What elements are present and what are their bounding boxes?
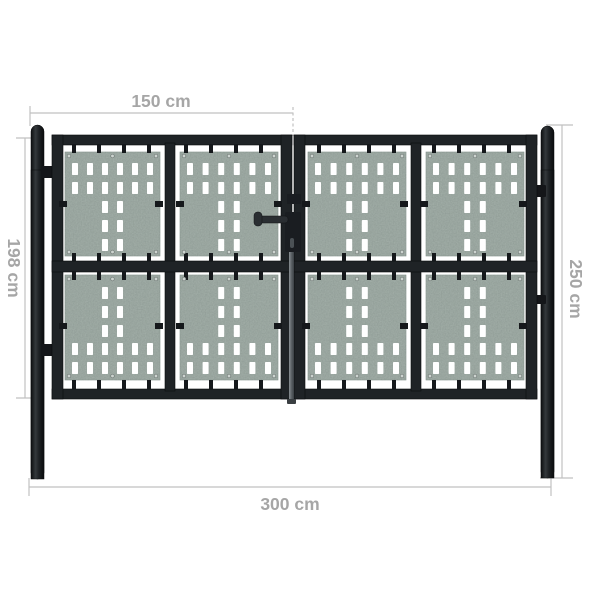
panel-screw [355, 250, 359, 254]
panel-hole [346, 306, 352, 318]
mounting-clip [234, 253, 238, 261]
mounting-clip [72, 253, 76, 261]
panel-hole [249, 362, 255, 374]
panel-screw [428, 374, 432, 378]
mounting-clip [72, 380, 76, 389]
mounting-clip [432, 144, 436, 153]
panel-hole [187, 182, 193, 194]
panel-hole [234, 220, 240, 232]
mounting-clip [72, 271, 76, 280]
panel-screw [227, 250, 231, 254]
mounting-clip [259, 144, 263, 153]
panel-hole [102, 239, 108, 251]
mounting-clip [482, 144, 486, 153]
mounting-clip [420, 201, 428, 207]
panel-hole [187, 163, 193, 175]
panel-hole [495, 182, 501, 194]
mounting-clip [176, 201, 184, 207]
mounting-clip [457, 144, 461, 153]
drop-rod [289, 250, 294, 400]
panel-screw [428, 277, 432, 281]
keyhole-plate [290, 238, 294, 248]
panel-hole [433, 182, 439, 194]
dimension-label-bottom-width: 300 cm [260, 494, 319, 514]
mounting-clip [155, 323, 163, 329]
mounting-clip [392, 144, 396, 153]
mounting-clip [432, 271, 436, 280]
panel-hole [218, 239, 224, 251]
panel-hole [480, 362, 486, 374]
panel-hole [464, 306, 470, 318]
panel-hole [362, 163, 368, 175]
panel-hole [102, 343, 108, 355]
panel-hole [218, 306, 224, 318]
panel-hole [203, 362, 209, 374]
panel-hole [362, 325, 368, 337]
panel-hole [87, 163, 93, 175]
panel-hole [218, 220, 224, 232]
panel-hole [511, 343, 517, 355]
panel-hole [315, 182, 321, 194]
left-leaf-mid-rail [52, 261, 292, 272]
panel-hole [362, 239, 368, 251]
panel-hole [346, 182, 352, 194]
panel-screw [355, 277, 359, 281]
panel-hole [234, 362, 240, 374]
panel-hole [511, 182, 517, 194]
panel-hole [464, 362, 470, 374]
panel-hole [449, 163, 455, 175]
panel-screw [227, 154, 231, 158]
panel-hole [511, 163, 517, 175]
panel-hole [315, 163, 321, 175]
panel-hole [72, 182, 78, 194]
panel-screw [518, 250, 522, 254]
panel-hole [433, 163, 439, 175]
panel-screw [355, 154, 359, 158]
right-leaf-mid-rail [294, 261, 537, 272]
panel-hole [346, 362, 352, 374]
panel-hole [480, 182, 486, 194]
panel-hole [464, 239, 470, 251]
mounting-clip [482, 271, 486, 280]
panel-hole [346, 343, 352, 355]
panel-hole [132, 182, 138, 194]
panel-hole [393, 362, 399, 374]
mounting-clip [97, 144, 101, 153]
panel-screw [310, 154, 314, 158]
mounting-clip [274, 201, 282, 207]
panel-hole [393, 182, 399, 194]
panel-hole [234, 325, 240, 337]
dimension-label-right-height: 250 cm [566, 259, 586, 318]
panel-hole [265, 343, 271, 355]
panel-hole [102, 287, 108, 299]
mounting-clip [72, 144, 76, 153]
panel-hole [203, 163, 209, 175]
panel-hole [346, 201, 352, 213]
panel-hole [449, 362, 455, 374]
panel-bottom-far-left [65, 275, 160, 380]
panel-hole [377, 362, 383, 374]
panel-hole [362, 201, 368, 213]
panel-hole [464, 182, 470, 194]
panel-screw [67, 277, 71, 281]
mounting-clip [432, 380, 436, 389]
mounting-clip [317, 271, 321, 280]
panel-hole [147, 362, 153, 374]
panel-hole [331, 343, 337, 355]
mounting-clip [97, 253, 101, 261]
panel-hole [218, 182, 224, 194]
panel-hole [87, 182, 93, 194]
mounting-clip [400, 323, 408, 329]
mounting-clip [367, 144, 371, 153]
panel-hole [480, 163, 486, 175]
mounting-clip [482, 380, 486, 389]
panel-screw [182, 154, 186, 158]
mounting-clip [209, 271, 213, 280]
panel-hole [102, 163, 108, 175]
panel-hole [249, 163, 255, 175]
panel-screw [473, 250, 477, 254]
panel-hole [249, 343, 255, 355]
panel-bottom-far-right [426, 275, 524, 380]
panel-hole [102, 182, 108, 194]
mounting-clip [234, 271, 238, 280]
panel-screw [428, 154, 432, 158]
mounting-clip [317, 253, 321, 261]
panel-hole [362, 306, 368, 318]
panel-screw [67, 154, 71, 158]
panel-hole [480, 201, 486, 213]
mounting-clip [122, 253, 126, 261]
panel-hole [117, 287, 123, 299]
panel-hole [218, 343, 224, 355]
mounting-clip [367, 380, 371, 389]
panel-screw [182, 374, 186, 378]
panel-hole [117, 362, 123, 374]
mounting-clip [147, 271, 151, 280]
panel-hole [331, 362, 337, 374]
panel-screw [67, 250, 71, 254]
mounting-clip [457, 253, 461, 261]
panel-hole [234, 343, 240, 355]
mounting-clip [209, 253, 213, 261]
mounting-clip [147, 253, 151, 261]
panel-hole [218, 163, 224, 175]
panel-hole [315, 343, 321, 355]
panel-hole [234, 201, 240, 213]
product-image-canvas: 150 cm 198 cm 250 cm 300 cm [0, 0, 600, 600]
panel-hole [249, 182, 255, 194]
dimension-label-top-width: 150 cm [131, 91, 190, 111]
panel-hole [377, 182, 383, 194]
panel-hole [449, 343, 455, 355]
panel-screw [111, 374, 115, 378]
panel-hole [464, 287, 470, 299]
panel-screw [518, 277, 522, 281]
panel-hole [480, 239, 486, 251]
panel-screw [111, 154, 115, 158]
panel-hole [117, 306, 123, 318]
panel-screw [518, 374, 522, 378]
mounting-clip [507, 144, 511, 153]
panel-hole [265, 362, 271, 374]
panel-screw [67, 374, 71, 378]
panel-screw [355, 374, 359, 378]
panel-hole [234, 287, 240, 299]
mounting-clip [342, 271, 346, 280]
mounting-clip [122, 271, 126, 280]
panel-screw [227, 374, 231, 378]
mounting-clip [147, 144, 151, 153]
mounting-clip [392, 271, 396, 280]
panel-top-far-right [426, 152, 524, 256]
handle-end-cap [254, 212, 262, 226]
panel-screw [272, 154, 276, 158]
panel-hole [480, 325, 486, 337]
panel-hole [117, 325, 123, 337]
mounting-clip [184, 380, 188, 389]
mounting-clip [432, 253, 436, 261]
panel-top-far-left [65, 152, 160, 256]
mounting-clip [209, 380, 213, 389]
panel-screw [310, 250, 314, 254]
panel-hole [464, 343, 470, 355]
panel-hole [187, 343, 193, 355]
panel-hole [495, 362, 501, 374]
panel-hole [331, 163, 337, 175]
mounting-clip [482, 253, 486, 261]
panel-hole [117, 163, 123, 175]
mounting-clip [97, 271, 101, 280]
panel-hole [132, 343, 138, 355]
panel-hole [117, 182, 123, 194]
panel-hole [218, 287, 224, 299]
mounting-clip [367, 271, 371, 280]
panel-screw [227, 277, 231, 281]
panel-hole [132, 362, 138, 374]
panel-top-center-right [308, 152, 406, 256]
panel-hole [234, 182, 240, 194]
mounting-clip [420, 323, 428, 329]
panel-hole [393, 343, 399, 355]
panel-hole [218, 325, 224, 337]
mounting-clip [259, 380, 263, 389]
panel-hole [449, 182, 455, 194]
panel-screw [272, 277, 276, 281]
panel-hole [480, 306, 486, 318]
mounting-clip [507, 253, 511, 261]
panel-hole [362, 362, 368, 374]
panel-hole [495, 163, 501, 175]
panel-screw [473, 154, 477, 158]
panel-hole [102, 362, 108, 374]
panel-screw [310, 374, 314, 378]
panel-hole [377, 343, 383, 355]
mounting-clip [302, 323, 310, 329]
panel-screw [154, 374, 158, 378]
mounting-clip [259, 271, 263, 280]
panel-hole [72, 163, 78, 175]
mounting-clip [59, 201, 67, 207]
panel-hole [87, 343, 93, 355]
mounting-clip [367, 253, 371, 261]
mounting-clip [342, 144, 346, 153]
panel-hole [346, 239, 352, 251]
panel-hole [346, 325, 352, 337]
panel-screw [400, 374, 404, 378]
mounting-clip [234, 144, 238, 153]
panel-hole [234, 163, 240, 175]
mounting-clip [519, 323, 527, 329]
panel-hole [132, 163, 138, 175]
panel-hole [480, 343, 486, 355]
mounting-clip [155, 201, 163, 207]
panel-hole [203, 343, 209, 355]
mounting-clip [122, 144, 126, 153]
mounting-clip [59, 323, 67, 329]
mounting-clip [122, 380, 126, 389]
panel-hole [218, 201, 224, 213]
mounting-clip [317, 144, 321, 153]
panel-hole [362, 287, 368, 299]
panel-screw [182, 250, 186, 254]
drop-rod-foot [287, 399, 296, 404]
mounting-clip [184, 253, 188, 261]
panel-hole [117, 201, 123, 213]
mounting-clip [302, 201, 310, 207]
mounting-clip [209, 144, 213, 153]
mounting-clip [392, 253, 396, 261]
panel-hole [203, 182, 209, 194]
panel-screw [272, 250, 276, 254]
panel-hole [234, 306, 240, 318]
panel-hole [187, 362, 193, 374]
dimension-label-left-height: 198 cm [4, 238, 24, 297]
panel-hole [480, 220, 486, 232]
panel-screw [400, 250, 404, 254]
mounting-clip [457, 271, 461, 280]
panel-hole [147, 343, 153, 355]
panel-hole [464, 325, 470, 337]
panel-hole [102, 201, 108, 213]
mounting-clip [259, 253, 263, 261]
panel-hole [495, 343, 501, 355]
mounting-clip [342, 380, 346, 389]
mounting-clip [507, 271, 511, 280]
mounting-clip [507, 380, 511, 389]
panel-hole [72, 362, 78, 374]
panel-screw [272, 374, 276, 378]
mounting-clip [274, 323, 282, 329]
panel-hole [265, 163, 271, 175]
panel-hole [147, 182, 153, 194]
panel-bottom-center-left [180, 275, 278, 380]
mounting-clip [147, 380, 151, 389]
mounting-clip [234, 380, 238, 389]
panel-hole [87, 362, 93, 374]
mounting-clip [457, 380, 461, 389]
panel-hole [102, 306, 108, 318]
panel-bottom-center-right [308, 275, 406, 380]
mounting-clip [392, 380, 396, 389]
panel-hole [346, 220, 352, 232]
mounting-clip [519, 201, 527, 207]
panel-hole [346, 287, 352, 299]
panel-screw [400, 277, 404, 281]
panel-hole [362, 182, 368, 194]
panel-hole [218, 362, 224, 374]
mounting-clip [400, 201, 408, 207]
panel-hole [117, 343, 123, 355]
panel-hole [265, 182, 271, 194]
panel-hole [511, 362, 517, 374]
panel-hole [117, 220, 123, 232]
panel-screw [473, 374, 477, 378]
left-post [31, 125, 44, 479]
mounting-clip [184, 144, 188, 153]
panel-hole [315, 362, 321, 374]
panel-screw [400, 154, 404, 158]
panel-hole [102, 325, 108, 337]
mounting-clip [97, 380, 101, 389]
panel-hole [377, 163, 383, 175]
panel-screw [310, 277, 314, 281]
panel-screw [154, 154, 158, 158]
panel-screw [182, 277, 186, 281]
panel-hole [234, 239, 240, 251]
mounting-clip [317, 380, 321, 389]
panel-hole [147, 163, 153, 175]
panel-hole [362, 343, 368, 355]
latch-keeper [287, 194, 301, 204]
panel-hole [102, 220, 108, 232]
panel-screw [111, 277, 115, 281]
panel-screw [518, 154, 522, 158]
panel-hole [117, 239, 123, 251]
panel-hole [346, 163, 352, 175]
panel-hole [464, 201, 470, 213]
panel-hole [433, 343, 439, 355]
panel-hole [464, 220, 470, 232]
panel-screw [154, 277, 158, 281]
panel-top-center-left [180, 152, 278, 256]
panel-screw [428, 250, 432, 254]
panel-hole [480, 287, 486, 299]
panel-screw [154, 250, 158, 254]
panel-hole [331, 182, 337, 194]
panel-hole [362, 220, 368, 232]
panel-screw [111, 250, 115, 254]
panel-hole [72, 343, 78, 355]
panel-hole [464, 163, 470, 175]
panel-screw [473, 277, 477, 281]
mounting-clip [342, 253, 346, 261]
panel-hole [393, 163, 399, 175]
mounting-clip [176, 323, 184, 329]
gate-dimension-diagram: 150 cm 198 cm 250 cm 300 cm [0, 0, 600, 600]
panel-hole [433, 362, 439, 374]
